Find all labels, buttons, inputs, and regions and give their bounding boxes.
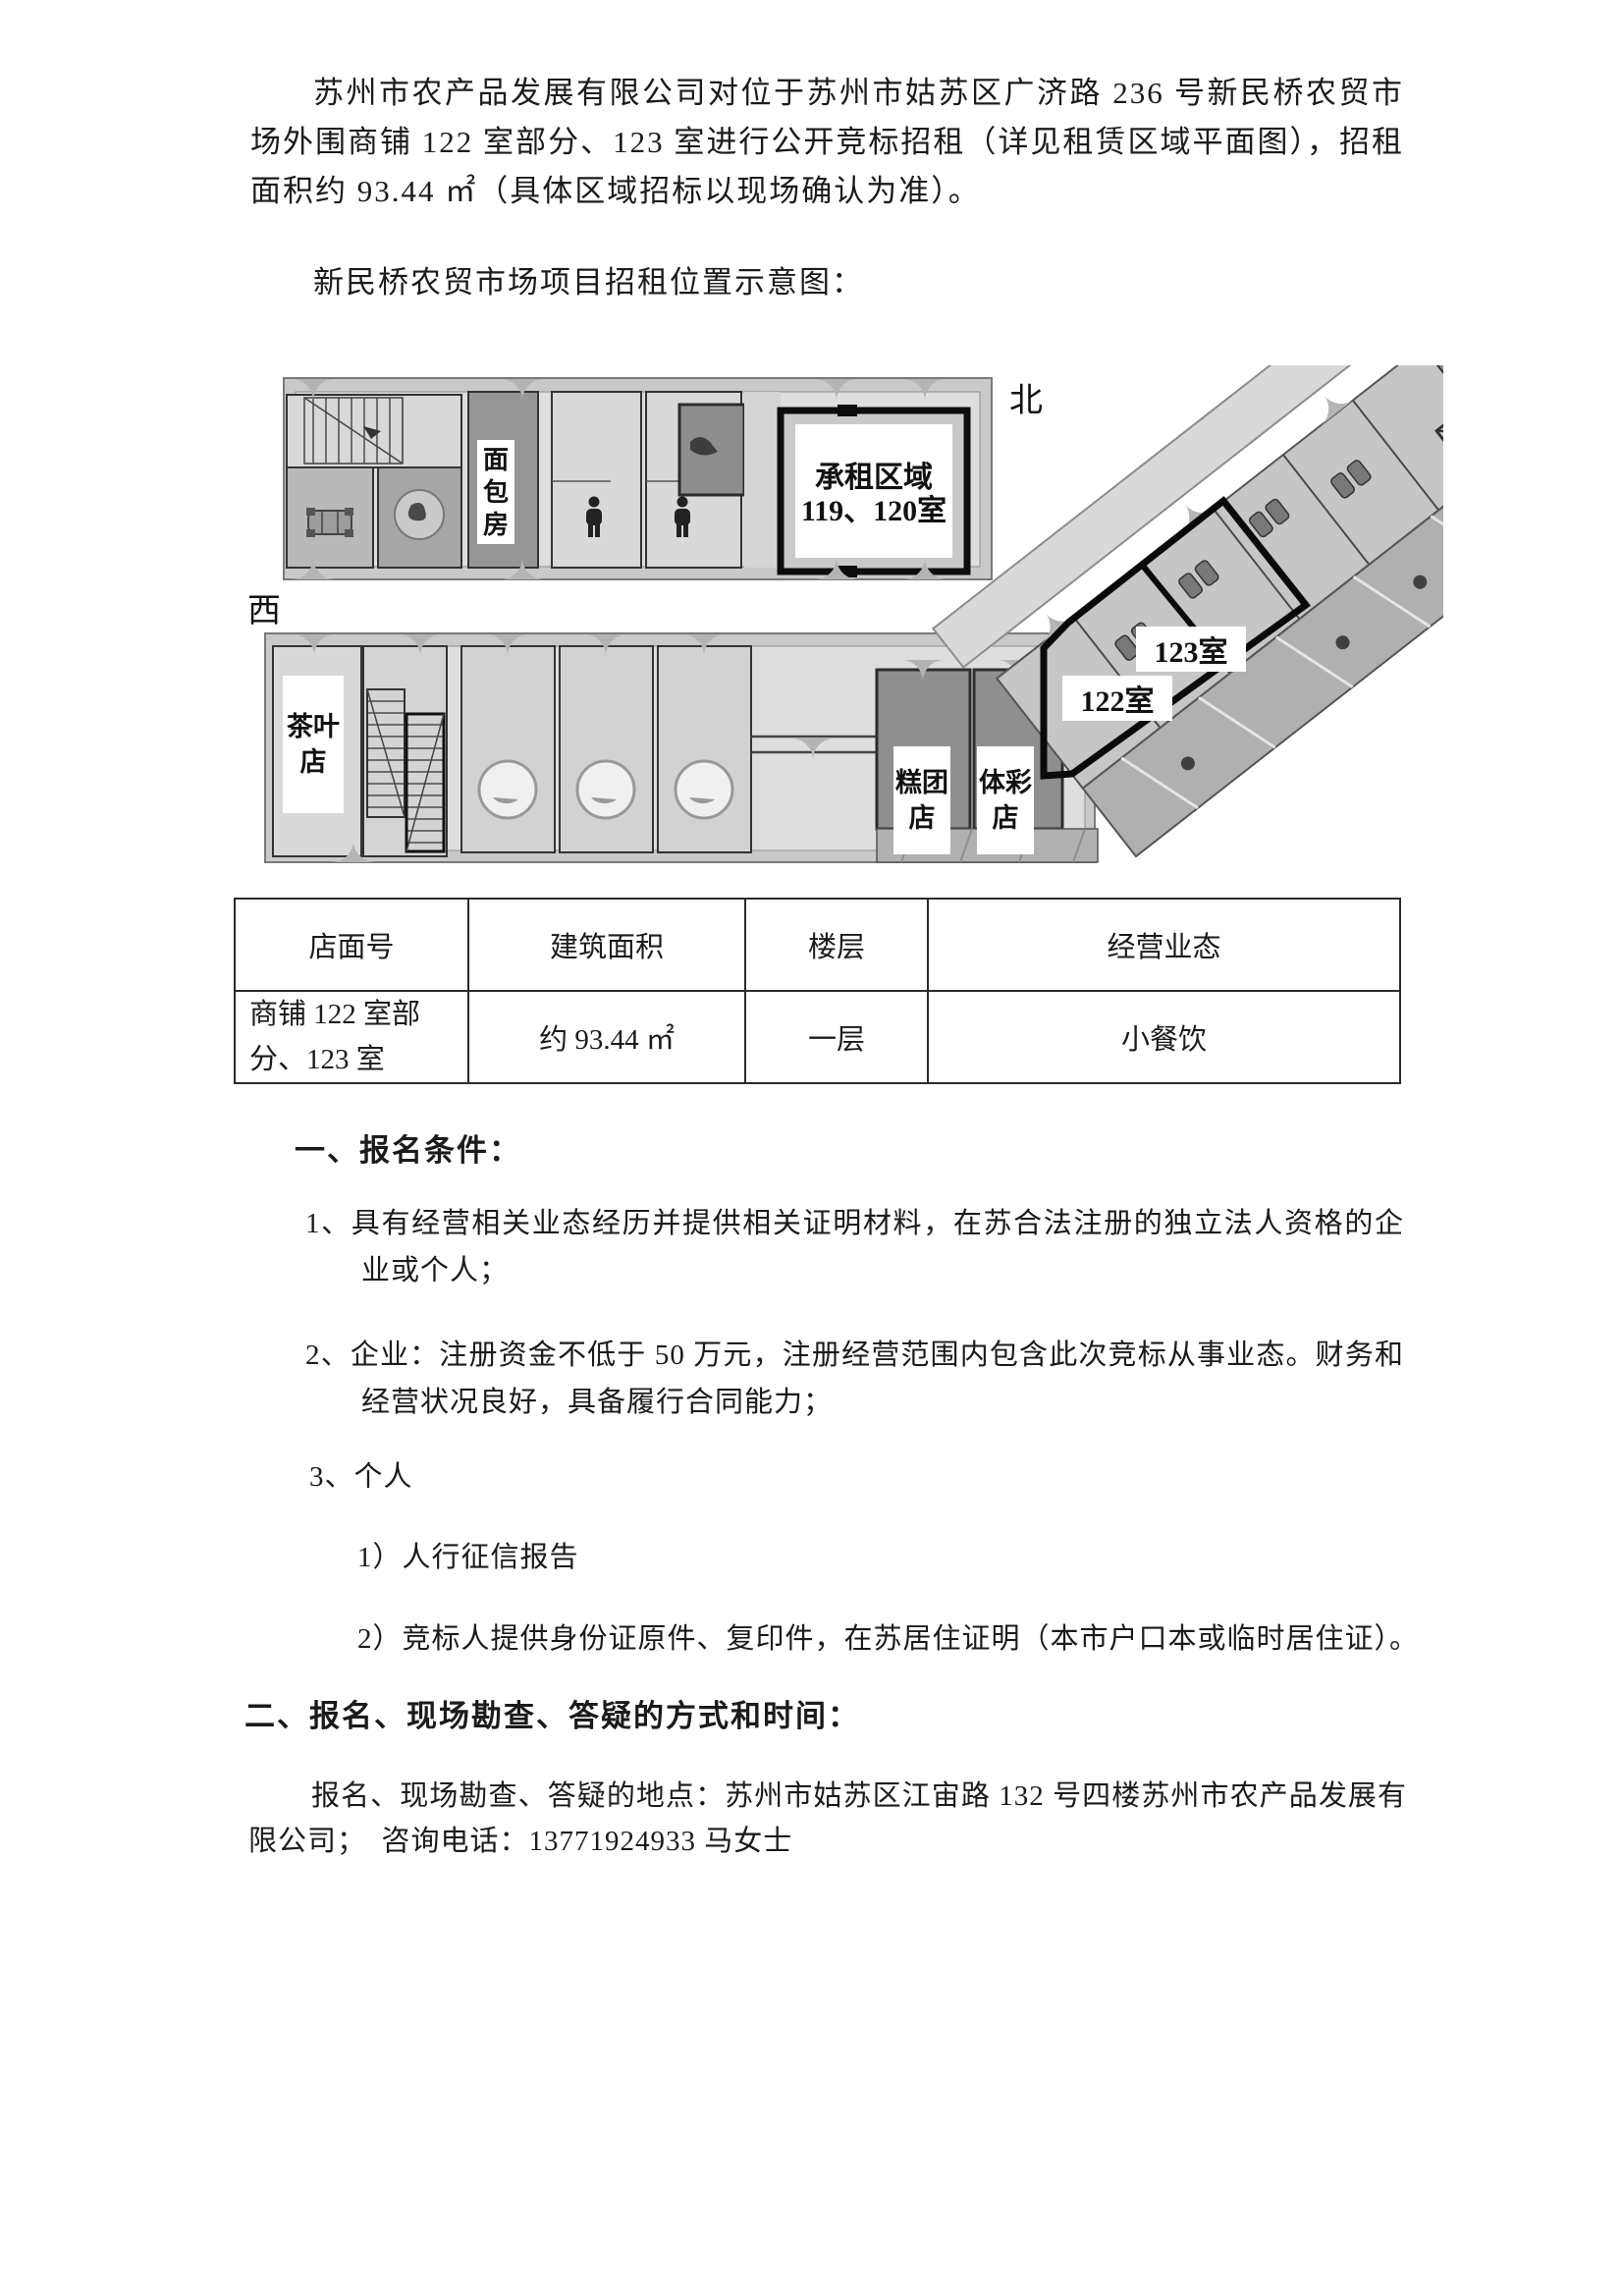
north-label: 北 (1009, 373, 1043, 421)
bakery-label: 面包房 (477, 440, 514, 544)
section-one-heading: 一、报名条件： (295, 1125, 521, 1170)
shop-info-table: 店面号 建筑面积 楼层 经营业态 商铺 122 室部分、123 室 约 93.4… (234, 898, 1399, 1080)
table-header-floor-area: 建筑面积 (468, 899, 745, 991)
car-icon (306, 508, 353, 537)
room-122-label: 122室 (1062, 676, 1172, 721)
cell-shop-number: 商铺 122 室部分、123 室 (235, 991, 468, 1083)
table-header-shop-number: 店面号 (235, 899, 468, 991)
cell-floor: 一层 (745, 991, 928, 1083)
table-header-business-type: 经营业态 (928, 899, 1400, 991)
bottom-building (265, 633, 1098, 862)
contact-paragraph: 报名、现场勘查、答疑的地点：苏州市姑苏区江宙路 132 号四楼苏州市农产品发展有… (248, 1774, 1407, 1864)
cell-floor-area: 约 93.44 ㎡ (468, 991, 745, 1083)
cell-business-type: 小餐饮 (928, 991, 1400, 1083)
floor-plan-diagram: 北 西 面包房 承租区域 119、120室 茶叶店 糕团店 体彩店 122室 1… (167, 365, 1443, 868)
condition-item-2: 2、企业：注册资金不低于 50 万元，注册经营范围内包含此次竞标从事业态。财务和… (305, 1332, 1404, 1426)
diagram-caption: 新民桥农贸市场项目招租位置示意图： (313, 258, 1393, 307)
table-header-floor: 楼层 (745, 899, 928, 991)
condition-item-3: 3、个人 (309, 1453, 1352, 1501)
round-table-icon (479, 761, 732, 818)
document-page: 苏州市农产品发展有限公司对位于苏州市姑苏区广济路 236 号新民桥农贸市场外围商… (0, 0, 1623, 2296)
section-two-heading: 二、报名、现场勘查、答疑的方式和时间： (244, 1691, 860, 1735)
room-123-label: 123室 (1136, 627, 1246, 672)
table-row: 商铺 122 室部分、123 室 约 93.44 ㎡ 一层 小餐饮 (235, 991, 1400, 1083)
leased-area-label: 承租区域 119、120室 (795, 424, 952, 558)
leased-area-line1: 承租区域 (801, 462, 947, 495)
intro-paragraph: 苏州市农产品发展有限公司对位于苏州市姑苏区广济路 236 号新民桥农贸市场外围商… (250, 69, 1404, 216)
shop-unit (461, 646, 555, 852)
shop-unit (658, 646, 751, 852)
round-fixture-icon (395, 490, 444, 539)
west-label: 西 (247, 583, 281, 631)
condition-subitem-2: 2）竞标人提供身份证原件、复印件，在苏居住证明（本市户口本或临时居住证）。 (357, 1615, 1434, 1663)
tea-shop-label: 茶叶店 (283, 676, 344, 813)
condition-subitem-1: 1）人行征信报告 (357, 1534, 1400, 1581)
lottery-shop-label: 体彩店 (977, 746, 1034, 854)
shop-unit (560, 646, 653, 852)
condition-item-1: 1、具有经营相关业态经历并提供相关证明材料，在苏合法注册的独立法人资格的企业或个… (305, 1200, 1404, 1294)
restroom-1 (552, 392, 641, 568)
cake-shop-label: 糕团店 (893, 746, 950, 854)
leased-area-line2: 119、120室 (801, 495, 947, 528)
